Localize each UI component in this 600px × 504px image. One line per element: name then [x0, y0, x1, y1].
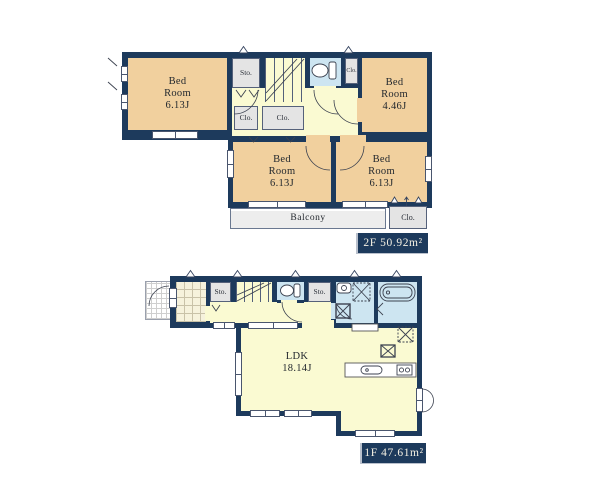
storage-2f: Sto. [232, 58, 260, 88]
window [152, 131, 198, 139]
door-opening [281, 300, 297, 303]
stairs-1f [236, 282, 272, 302]
storage-1f-b: Sto. [308, 282, 331, 302]
area-label-2f: 2F 50.92m² [356, 233, 428, 254]
door-opening [340, 135, 366, 143]
bathroom [378, 282, 417, 323]
balcony: Balcony [230, 208, 386, 229]
room-bedroom-ne: Bed Room 4.46J [362, 58, 427, 132]
closet-2f-ne: Clo. [345, 58, 358, 84]
window-ticks [108, 58, 117, 90]
back-door [416, 388, 423, 412]
sliding-door [248, 322, 298, 329]
door-opening [357, 98, 363, 122]
window [355, 430, 395, 437]
window [227, 150, 234, 178]
stairs-2f [265, 58, 305, 102]
room-bedroom-se: Bed Room 6.13J [336, 142, 427, 202]
toilet-room-2f [310, 58, 341, 86]
closet-balcony: Clo. [389, 206, 427, 229]
window [284, 410, 312, 417]
window [235, 352, 242, 396]
storage-1f-a: Sto. [210, 282, 231, 302]
entrance-door [169, 288, 177, 308]
window [121, 66, 128, 82]
entry [176, 282, 206, 322]
window [342, 201, 388, 208]
closet-2f-b: Clo. [262, 106, 304, 130]
floor-plan: Bed Room 6.13J Sto. Clo. Bed Room 4.46J … [0, 0, 600, 504]
room-bedroom-nw: Bed Room 6.13J [128, 58, 227, 130]
door-opening [302, 320, 334, 330]
window [213, 322, 235, 329]
washroom [336, 282, 374, 323]
window [248, 201, 306, 208]
ldk-label: LDK 18.14J [253, 348, 341, 378]
door-opening [205, 306, 211, 321]
window [250, 410, 280, 417]
window [121, 94, 128, 110]
area-label-1f: 1F 47.61m² [360, 443, 426, 464]
door-opening [331, 303, 336, 319]
door-opening [314, 86, 336, 90]
room-bedroom-s: Bed Room 6.13J [233, 142, 331, 202]
window [425, 156, 432, 182]
door-opening [306, 135, 330, 143]
toilet-room-1f [277, 282, 304, 302]
closet-2f-a: Clo. [234, 106, 258, 130]
